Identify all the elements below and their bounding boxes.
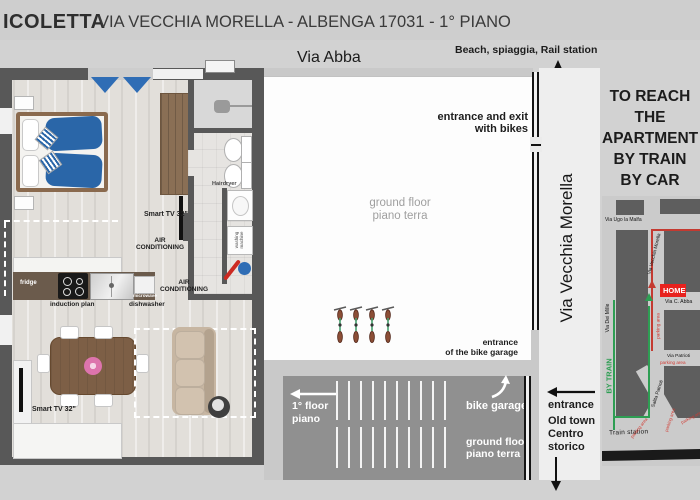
tv-living-icon (19, 368, 23, 412)
ac-line2: CONDITIONING (158, 286, 210, 293)
map-via-vecchia-morella-label: Via Vecchia Morella (647, 233, 662, 275)
top-window-gap (153, 69, 203, 79)
induction-hob-icon (58, 273, 88, 299)
car-route-h (651, 229, 700, 231)
dashed-divider-h (4, 220, 118, 222)
sofa-cushion (175, 387, 205, 415)
mini-map: Train station HOME Via Ugo la Malfa Via … (602, 196, 700, 466)
shower-head-icon (214, 100, 230, 113)
entrance-exit-line2: with bikes (420, 123, 528, 135)
address-subtitle: VIA VECCHIA MORELLA - ALBENGA 17031 - 1°… (98, 13, 511, 31)
old-town-l1: Old town (548, 415, 595, 427)
train-route-v-center (648, 306, 650, 418)
left-window-2 (0, 315, 12, 345)
tv-bedroom-label: Smart TV 32" (144, 211, 188, 219)
ac-kitchen-label: AIR CONDITIONING (158, 279, 210, 294)
map-block (664, 230, 700, 292)
directions-l5: BY CAR (602, 170, 698, 191)
directions-l4: BY TRAIN (602, 149, 698, 170)
first-floor-label-l1: 1° floor (292, 401, 328, 413)
directions-l2: THE (602, 107, 698, 128)
map-block (660, 199, 700, 214)
entrance-exit-line1: entrance and exit (420, 111, 528, 123)
dishwasher-label: dishwasher (129, 301, 165, 308)
shower-wall (194, 128, 252, 133)
kitchen-sink-icon (90, 273, 134, 300)
old-town-l2: Centro (548, 428, 583, 440)
map-parking-label-2: parking area (660, 360, 686, 365)
bathroom-bottom-wall (188, 294, 252, 300)
bed-pillow (22, 119, 39, 151)
courtyard-street-wall (532, 72, 539, 330)
sidewalk-top (264, 68, 533, 76)
car-route-v (651, 229, 653, 351)
header: ICOLETTA VIA VECCHIA MORELLA - ALBENGA 1… (0, 0, 700, 40)
street-gate-line (531, 144, 541, 146)
side-table-highlight (212, 399, 224, 411)
arrow-left-first-floor-icon (290, 388, 336, 400)
map-via-mille-label: Via Dei Mille (605, 304, 611, 333)
outdoor-unit (205, 60, 235, 73)
floorplan-page: ICOLETTA VIA VECCHIA MORELLA - ALBENGA 1… (0, 0, 700, 500)
faucet (109, 283, 114, 288)
stairs-upper-flight (336, 381, 454, 420)
map-via-ugo-label: Via Ugo la Malfa (605, 217, 642, 223)
hairdryer-label: Hairdryer (212, 181, 236, 187)
map-by-train-label: BY TRAIN (605, 358, 614, 393)
bed-pillow (22, 155, 39, 187)
brand-title: ICOLETTA (3, 11, 106, 33)
ac-line1: AIR (134, 237, 186, 244)
courtyard-ground-floor-label: ground floor piano terra (348, 197, 452, 223)
bike-entrance-line2: of the bike garage (408, 348, 518, 358)
microwave-label: microwave (133, 293, 157, 298)
sofa-cushion (175, 331, 205, 359)
via-vecchia-morella-label: Via Vecchia Morella (557, 174, 577, 323)
map-parking-label-1: parking area (656, 313, 661, 339)
entrance-exit-bikes-label: entrance and exit with bikes (420, 111, 528, 136)
sofa-cushion (175, 359, 205, 387)
via-abba-label: Via Abba (297, 49, 361, 67)
toilet-tank (241, 136, 252, 163)
tv-living-label: Smart TV 32" (32, 406, 76, 414)
map-via-abba-label: Via C. Abba (665, 299, 692, 305)
courtyard-line2: piano terra (348, 210, 452, 223)
bike-garage-label: bike garage (466, 400, 527, 412)
entrance-label: entrance (548, 399, 594, 411)
dashed-divider-v (4, 222, 6, 296)
nightstand-top (14, 96, 34, 110)
map-block (664, 310, 700, 350)
map-via-patrioti-label: Via Patrioti (667, 354, 690, 359)
bikes-icon (333, 303, 397, 349)
first-floor-label-l2: piano (292, 414, 320, 426)
dining-table (50, 337, 136, 395)
wardrobe (160, 93, 190, 195)
sidewalk-bottom (264, 360, 533, 376)
directions-l3: APARTMENT (602, 128, 698, 149)
corridor-right-wall (524, 376, 531, 480)
train-route-arrow-icon (645, 293, 653, 301)
nightstand-bottom (14, 196, 34, 210)
dining-chair (94, 394, 113, 407)
fridge-label: fridge (20, 280, 37, 287)
ac-line2: CONDITIONING (134, 244, 186, 251)
washing-machine: washing machine (227, 226, 253, 255)
beach-note-label: Beach, spiaggia, Rail station (455, 45, 597, 57)
burner (75, 287, 84, 296)
induction-label: induction plan (50, 301, 94, 308)
sink-basin (232, 196, 249, 216)
window-bench (13, 423, 122, 459)
wall-base-lower (531, 330, 539, 480)
shower-pipe (230, 105, 252, 107)
cleaning-bucket-icon (238, 262, 251, 275)
dining-chair (60, 326, 79, 339)
entry-door-chevrons-icon (90, 77, 152, 95)
bathroom-left-wall-top (188, 80, 194, 150)
flower-centerpiece-icon (84, 357, 102, 375)
burner (63, 277, 72, 286)
side-table-icon (208, 396, 230, 418)
corridor-ground-label-l2: piano terra (466, 449, 520, 461)
burner (63, 288, 71, 296)
directions-block: TO REACH THE APARTMENT BY TRAIN BY CAR (602, 86, 698, 191)
old-town-l3: storico (548, 441, 585, 453)
arrow-left-entrance-icon (547, 386, 595, 398)
map-block (616, 200, 644, 215)
courtyard-line1: ground floor (348, 197, 452, 210)
curved-arrow-bike-garage-icon (489, 375, 515, 399)
dining-chair (37, 354, 50, 373)
bathroom-left-wall-bottom (188, 176, 194, 294)
bidet-tank (241, 162, 252, 189)
left-window-1 (0, 108, 12, 134)
microwave-icon (134, 276, 155, 294)
railway-line (602, 449, 700, 461)
burner (76, 278, 83, 285)
arrow-down-old-town-icon (549, 457, 563, 491)
ac-line1: AIR (158, 279, 210, 286)
dining-chair (94, 326, 113, 339)
car-route-arrow-icon (648, 280, 656, 288)
sink-vanity (227, 190, 253, 221)
map-block (616, 230, 648, 418)
home-marker: HOME (660, 284, 686, 297)
bike-garage-entrance-label: entrance of the bike garage (408, 338, 518, 357)
washing-machine-label: washing machine (235, 227, 245, 253)
double-bed (16, 112, 108, 192)
stairs-lower-flight (336, 427, 454, 468)
corridor-landing (264, 376, 283, 480)
corridor-ground-label-l1: ground floor (466, 437, 528, 449)
ac-hall-label: AIR CONDITIONING (134, 237, 186, 252)
directions-l1: TO REACH (602, 86, 698, 107)
home-label: HOME (663, 287, 686, 295)
street-name-text: Via Vecchia Morella (557, 174, 576, 323)
